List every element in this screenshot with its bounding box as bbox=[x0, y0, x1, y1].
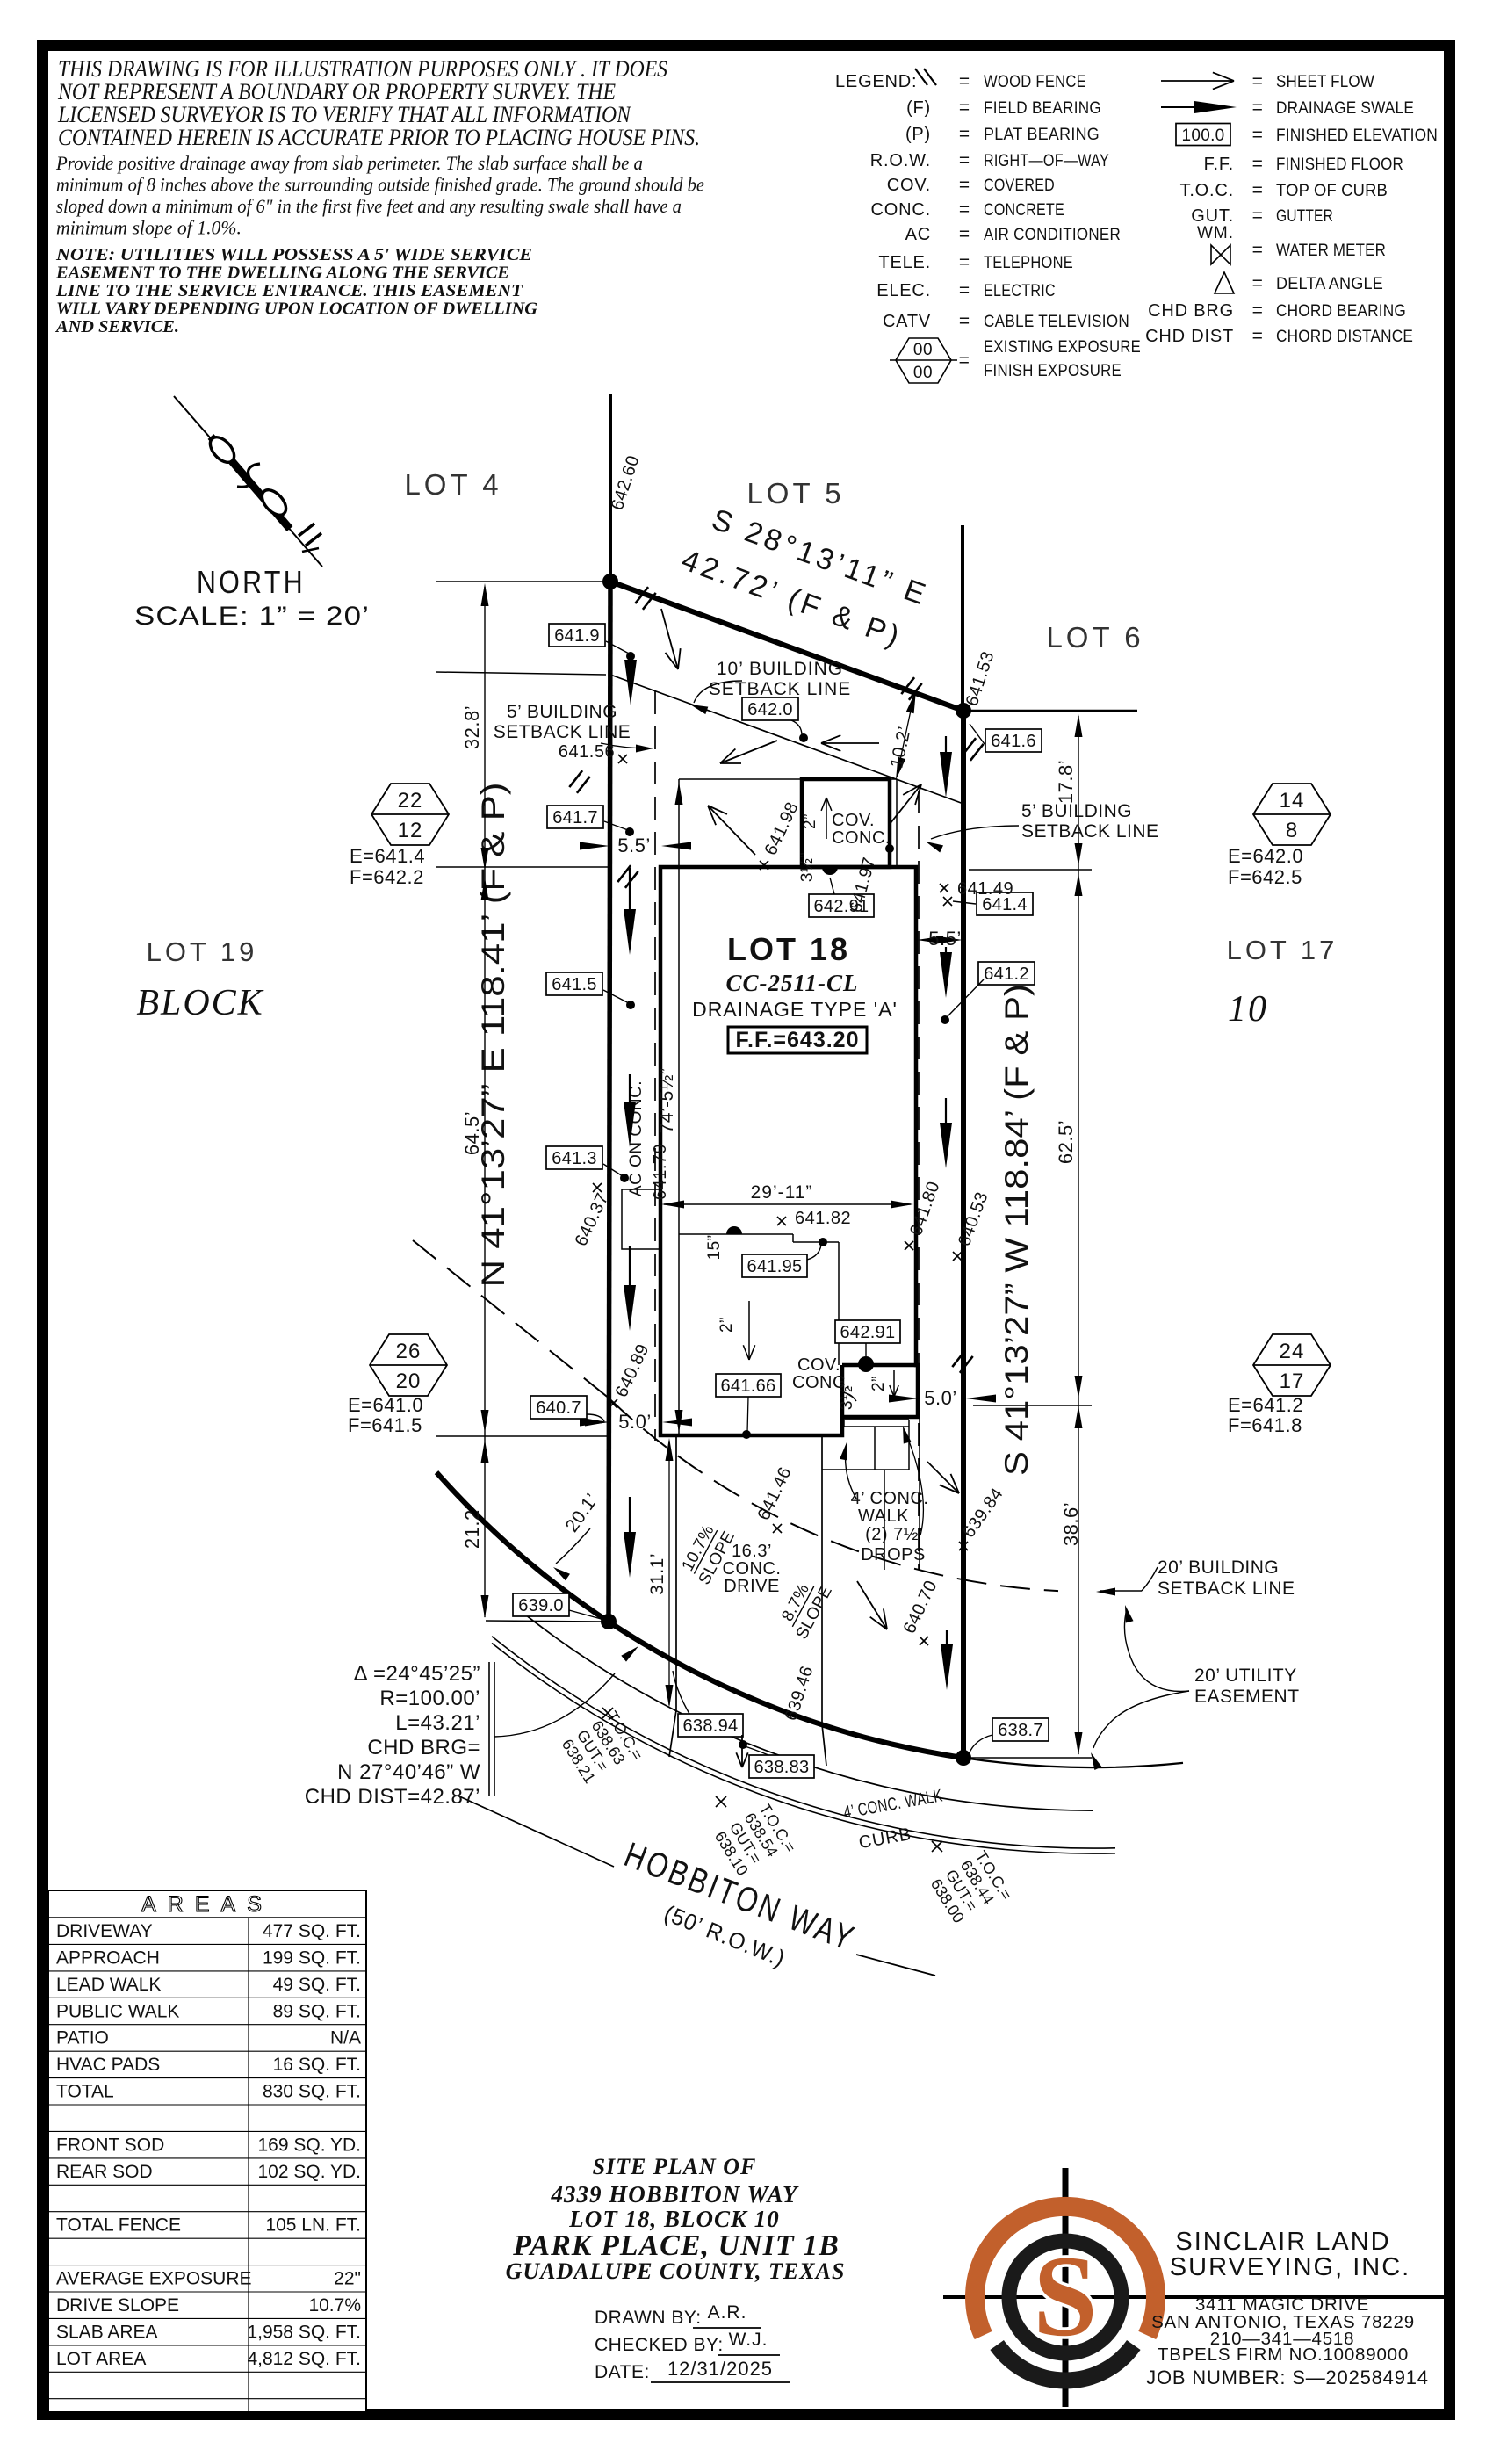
svg-text:CONC.: CONC. bbox=[871, 200, 931, 220]
svg-text:LOT 6: LOT 6 bbox=[1046, 621, 1143, 654]
svg-text:4339 HOBBITON WAY: 4339 HOBBITON WAY bbox=[550, 2181, 799, 2207]
svg-text:641.66: 641.66 bbox=[721, 1377, 776, 1396]
svg-text:COV.: COV. bbox=[832, 811, 875, 830]
svg-text:74’-5½”: 74’-5½” bbox=[657, 1068, 677, 1134]
svg-text:641.3: 641.3 bbox=[552, 1149, 597, 1168]
svg-text:E=641.4: E=641.4 bbox=[350, 845, 425, 867]
svg-text:TELE.: TELE. bbox=[878, 253, 931, 272]
svg-text:CATV: CATV bbox=[883, 312, 931, 331]
svg-text:E=641.0: E=641.0 bbox=[348, 1394, 423, 1416]
svg-text:24: 24 bbox=[1280, 1340, 1305, 1363]
svg-text:5’ BUILDING: 5’ BUILDING bbox=[1021, 801, 1132, 821]
svg-text:minimum of 8 inches above the: minimum of 8 inches above the surroundin… bbox=[56, 174, 704, 196]
svg-text:=: = bbox=[959, 199, 970, 220]
svg-text:REAR SOD: REAR SOD bbox=[56, 2162, 153, 2182]
svg-text:102 SQ. YD.: 102 SQ. YD. bbox=[257, 2162, 361, 2182]
svg-text:(F): (F) bbox=[906, 98, 931, 118]
svg-text:LOT 5: LOT 5 bbox=[746, 477, 844, 509]
svg-text:WATER METER: WATER METER bbox=[1276, 242, 1386, 260]
svg-text:4,812 SQ. FT.: 4,812 SQ. FT. bbox=[247, 2349, 361, 2369]
svg-text:38.6’: 38.6’ bbox=[1060, 1502, 1082, 1546]
svg-text:GUADALUPE COUNTY, TEXAS: GUADALUPE COUNTY, TEXAS bbox=[506, 2258, 846, 2284]
svg-text:169 SQ. YD.: 169 SQ. YD. bbox=[257, 2135, 361, 2155]
svg-text:=: = bbox=[959, 311, 970, 331]
svg-text:=: = bbox=[959, 150, 970, 170]
svg-text:14: 14 bbox=[1280, 789, 1305, 813]
svg-text:CHECKED BY:: CHECKED BY: bbox=[595, 2335, 724, 2355]
svg-text:CONCRETE: CONCRETE bbox=[984, 201, 1064, 220]
svg-text:5.5’: 5.5’ bbox=[617, 835, 650, 856]
svg-text:ELEC.: ELEC. bbox=[876, 281, 931, 300]
svg-text:CHD DIST: CHD DIST bbox=[1145, 327, 1234, 346]
svg-text:WILL VARY DEPENDING UPON L: WILL VARY DEPENDING UPON LOCATION OF DWE… bbox=[56, 300, 537, 319]
svg-text:DROPS: DROPS bbox=[861, 1545, 926, 1564]
svg-text:TBPELS FIRM NO.10089000: TBPELS FIRM NO.10089000 bbox=[1158, 2345, 1409, 2365]
svg-text:AND SERVICE.: AND SERVICE. bbox=[54, 318, 179, 336]
svg-text:1,958 SQ. FT.: 1,958 SQ. FT. bbox=[247, 2322, 361, 2342]
svg-text:CONC.: CONC. bbox=[832, 828, 891, 848]
svg-text:20: 20 bbox=[396, 1369, 422, 1393]
svg-text:LOT 17: LOT 17 bbox=[1227, 935, 1338, 965]
svg-text:E=641.2: E=641.2 bbox=[1228, 1394, 1303, 1416]
svg-text:SLAB AREA: SLAB AREA bbox=[56, 2322, 158, 2342]
svg-text:AC: AC bbox=[905, 225, 931, 244]
svg-text:5.5’: 5.5’ bbox=[928, 928, 961, 950]
svg-text:SETBACK LINE: SETBACK LINE bbox=[1158, 1579, 1295, 1599]
svg-text:F.F.: F.F. bbox=[1204, 155, 1234, 174]
svg-text:CONC.: CONC. bbox=[723, 1559, 782, 1579]
svg-text:17.8’: 17.8’ bbox=[1055, 760, 1077, 804]
svg-text:EASEMENT TO THE DWELLING A: EASEMENT TO THE DWELLING ALONG THE SERVI… bbox=[55, 264, 509, 283]
svg-text:=: = bbox=[959, 175, 970, 195]
svg-text:PUBLIC WALK: PUBLIC WALK bbox=[56, 2001, 179, 2021]
svg-text:3½”: 3½” bbox=[798, 852, 817, 882]
svg-text:17: 17 bbox=[1280, 1369, 1305, 1393]
svg-text:PLAT BEARING: PLAT BEARING bbox=[984, 126, 1100, 144]
svg-text:=: = bbox=[1252, 98, 1264, 118]
svg-text:641.6: 641.6 bbox=[991, 732, 1036, 751]
svg-text:SETBACK LINE: SETBACK LINE bbox=[709, 679, 852, 699]
svg-text:=: = bbox=[1252, 71, 1264, 91]
svg-text:GUT.: GUT. bbox=[1191, 206, 1234, 226]
svg-text:638.83: 638.83 bbox=[754, 1758, 810, 1777]
svg-text:8: 8 bbox=[1286, 819, 1298, 842]
svg-text:641.82: 641.82 bbox=[795, 1209, 851, 1228]
svg-text:COV.: COV. bbox=[797, 1355, 840, 1375]
svg-text:830 SQ. FT.: 830 SQ. FT. bbox=[263, 2082, 361, 2102]
svg-text:2”: 2” bbox=[801, 813, 819, 829]
svg-text:=: = bbox=[959, 98, 970, 118]
svg-text:THIS DRAWING IS FOR ILLUSTRATI: THIS DRAWING IS FOR ILLUSTRATION PURPOSE… bbox=[58, 56, 667, 82]
svg-text:W.J.: W.J. bbox=[729, 2330, 768, 2350]
svg-text:WM.: WM. bbox=[1197, 224, 1234, 242]
svg-text:SURVEYING, INC.: SURVEYING, INC. bbox=[1170, 2253, 1410, 2281]
svg-text:R.O.W.: R.O.W. bbox=[870, 151, 931, 170]
svg-text:LOT 4: LOT 4 bbox=[404, 468, 501, 501]
svg-text:DRAINAGE TYPE 'A': DRAINAGE TYPE 'A' bbox=[692, 998, 898, 1021]
svg-text:CC-2511-CL: CC-2511-CL bbox=[725, 970, 858, 996]
svg-text:DRAWN BY:: DRAWN BY: bbox=[595, 2308, 702, 2328]
svg-text:=: = bbox=[1252, 125, 1264, 145]
svg-text:16.3’: 16.3’ bbox=[732, 1542, 772, 1561]
svg-text:SETBACK LINE: SETBACK LINE bbox=[494, 722, 631, 742]
svg-text:=: = bbox=[959, 224, 970, 244]
svg-text:=: = bbox=[1252, 180, 1264, 200]
svg-text:LINE TO THE SERVICE ENTRAN: LINE TO THE SERVICE ENTRANCE. THIS EASEM… bbox=[55, 282, 523, 300]
svg-text:62.5’: 62.5’ bbox=[1055, 1120, 1077, 1164]
svg-text:26: 26 bbox=[396, 1340, 422, 1363]
svg-text:641.5: 641.5 bbox=[552, 975, 597, 994]
svg-text:DRIVE SLOPE: DRIVE SLOPE bbox=[56, 2295, 179, 2316]
svg-text:PARK PLACE, UNIT 1B: PARK PLACE, UNIT 1B bbox=[512, 2229, 840, 2262]
svg-text:=: = bbox=[1252, 273, 1264, 293]
svg-text:GUTTER: GUTTER bbox=[1276, 207, 1333, 226]
svg-text:F=642.5: F=642.5 bbox=[1228, 866, 1302, 888]
svg-text:641.49: 641.49 bbox=[957, 879, 1013, 899]
svg-text:N 41°13’27” E 118.41’ (F & P): N 41°13’27” E 118.41’ (F & P) bbox=[475, 783, 511, 1288]
svg-text:FRONT SOD: FRONT SOD bbox=[56, 2135, 164, 2155]
svg-text:10: 10 bbox=[1228, 989, 1268, 1030]
svg-text:(2) 7½’: (2) 7½’ bbox=[865, 1525, 923, 1544]
svg-text:=: = bbox=[959, 252, 970, 272]
svg-text:64.5’: 64.5’ bbox=[461, 1111, 483, 1155]
svg-text:CABLE TELEVISION: CABLE TELEVISION bbox=[984, 313, 1129, 331]
svg-text:640.7: 640.7 bbox=[536, 1398, 581, 1418]
svg-text:Δ =24°45’25”: Δ =24°45’25” bbox=[354, 1662, 480, 1686]
svg-text:S: S bbox=[1033, 2231, 1097, 2360]
svg-text:12/31/2025: 12/31/2025 bbox=[667, 2358, 773, 2380]
svg-text:TOTAL: TOTAL bbox=[56, 2082, 114, 2102]
svg-text:00: 00 bbox=[913, 364, 933, 382]
svg-text:TOTAL FENCE: TOTAL FENCE bbox=[56, 2215, 181, 2236]
svg-text:638.94: 638.94 bbox=[683, 1716, 739, 1736]
svg-text:=: = bbox=[1252, 326, 1264, 346]
svg-text:641.2: 641.2 bbox=[984, 965, 1029, 984]
svg-text:639.0: 639.0 bbox=[518, 1596, 564, 1615]
svg-text:=: = bbox=[1252, 300, 1264, 321]
svg-text:=: = bbox=[1252, 240, 1264, 260]
svg-text:CHD BRG=: CHD BRG= bbox=[367, 1736, 480, 1759]
svg-text:CHD DIST=42.87’: CHD DIST=42.87’ bbox=[305, 1785, 480, 1809]
svg-text:2”: 2” bbox=[869, 1376, 888, 1391]
svg-text:TELEPHONE: TELEPHONE bbox=[984, 254, 1073, 272]
svg-text:31.1’: 31.1’ bbox=[647, 1553, 667, 1595]
svg-text:CHORD DISTANCE: CHORD DISTANCE bbox=[1276, 328, 1413, 346]
svg-text:89 SQ. FT.: 89 SQ. FT. bbox=[273, 2001, 361, 2021]
svg-text:2”: 2” bbox=[718, 1317, 736, 1333]
svg-text:29’-11”: 29’-11” bbox=[751, 1182, 813, 1203]
svg-text:FINISHED ELEVATION: FINISHED ELEVATION bbox=[1276, 126, 1438, 145]
svg-text:LEGEND:: LEGEND: bbox=[835, 72, 917, 91]
svg-text:DRAINAGE SWALE: DRAINAGE SWALE bbox=[1276, 99, 1414, 118]
svg-text:SINCLAIR LAND: SINCLAIR LAND bbox=[1175, 2228, 1390, 2256]
svg-text:COVERED: COVERED bbox=[984, 177, 1055, 195]
svg-text:T.O.C.: T.O.C. bbox=[1180, 181, 1234, 200]
svg-text:SITE PLAN OF: SITE PLAN OF bbox=[593, 2154, 757, 2179]
svg-text:F.F.=643.20: F.F.=643.20 bbox=[736, 1028, 860, 1052]
svg-text:EASEMENT: EASEMENT bbox=[1194, 1687, 1300, 1707]
svg-text:DRIVEWAY: DRIVEWAY bbox=[56, 1921, 153, 1941]
svg-text:LOT 18, BLOCK 10: LOT 18, BLOCK 10 bbox=[568, 2206, 780, 2232]
svg-text:5.0’: 5.0’ bbox=[618, 1411, 651, 1433]
svg-text:R=100.00’: R=100.00’ bbox=[379, 1687, 480, 1710]
svg-text:5’ BUILDING: 5’ BUILDING bbox=[507, 702, 617, 722]
svg-text:JOB NUMBER: S—202584914: JOB NUMBER: S—202584914 bbox=[1146, 2366, 1429, 2388]
svg-text:AVERAGE EXPOSURE: AVERAGE EXPOSURE bbox=[56, 2269, 252, 2289]
svg-text:3½”: 3½” bbox=[838, 1380, 856, 1410]
svg-text:199 SQ. FT.: 199 SQ. FT. bbox=[263, 1947, 361, 1968]
svg-text:SCALE: 1” = 20’: SCALE: 1” = 20’ bbox=[134, 602, 370, 631]
svg-text:641.95: 641.95 bbox=[747, 1257, 803, 1276]
svg-text:105 LN. FT.: 105 LN. FT. bbox=[265, 2215, 361, 2236]
svg-text:642.0: 642.0 bbox=[747, 700, 793, 719]
svg-text:WOOD FENCE: WOOD FENCE bbox=[984, 73, 1086, 91]
svg-text:22: 22 bbox=[398, 789, 423, 813]
svg-text:16 SQ. FT.: 16 SQ. FT. bbox=[273, 2055, 361, 2075]
svg-text:DELTA ANGLE: DELTA ANGLE bbox=[1276, 275, 1383, 293]
svg-text:ELECTRIC: ELECTRIC bbox=[984, 282, 1056, 300]
svg-text:F=641.8: F=641.8 bbox=[1228, 1414, 1302, 1436]
svg-text:AREAS: AREAS bbox=[141, 1892, 273, 1917]
svg-text:F=642.2: F=642.2 bbox=[350, 866, 424, 888]
svg-text:DATE:: DATE: bbox=[595, 2362, 650, 2382]
svg-text:10’ BUILDING: 10’ BUILDING bbox=[717, 659, 843, 679]
svg-text:COV.: COV. bbox=[887, 176, 931, 195]
svg-text:=: = bbox=[1252, 206, 1264, 226]
svg-text:CONTAINED HEREIN IS ACCURATE P: CONTAINED HEREIN IS ACCURATE PRIOR TO PL… bbox=[58, 125, 700, 150]
svg-text:21.2’: 21.2’ bbox=[461, 1505, 483, 1549]
svg-text:WALK: WALK bbox=[858, 1507, 909, 1526]
svg-text:F=641.5: F=641.5 bbox=[348, 1414, 422, 1436]
svg-text:=: = bbox=[959, 124, 970, 144]
svg-text:LEAD WALK: LEAD WALK bbox=[56, 1975, 161, 1995]
svg-text:LOT 19: LOT 19 bbox=[147, 936, 258, 967]
svg-text:22": 22" bbox=[334, 2269, 361, 2289]
svg-text:20’ UTILITY: 20’ UTILITY bbox=[1194, 1666, 1297, 1686]
svg-text:5.0’: 5.0’ bbox=[924, 1387, 956, 1409]
svg-text:NOTE: UTILITIES WILL POSSES: NOTE: UTILITIES WILL POSSESS A 5' WIDE S… bbox=[55, 246, 532, 264]
svg-text:FINISH EXPOSURE: FINISH EXPOSURE bbox=[984, 362, 1122, 380]
svg-text:20’ BUILDING: 20’ BUILDING bbox=[1158, 1557, 1279, 1578]
svg-text:642.91: 642.91 bbox=[840, 1323, 896, 1342]
svg-text:638.7: 638.7 bbox=[998, 1721, 1043, 1740]
svg-text:S 41°13’27” W 118.84’ (F & P): S 41°13’27” W 118.84’ (F & P) bbox=[999, 984, 1035, 1476]
svg-text:LOT 18: LOT 18 bbox=[727, 931, 850, 967]
svg-text:AIR CONDITIONER: AIR CONDITIONER bbox=[984, 226, 1121, 244]
svg-text:=: = bbox=[1252, 154, 1264, 174]
svg-text:477 SQ. FT.: 477 SQ. FT. bbox=[263, 1921, 361, 1941]
svg-text:BLOCK: BLOCK bbox=[136, 983, 263, 1023]
svg-text:RIGHT—OF—WAY: RIGHT—OF—WAY bbox=[984, 152, 1109, 170]
svg-text:641.9: 641.9 bbox=[554, 626, 600, 646]
svg-text:A.R.: A.R. bbox=[708, 2302, 747, 2323]
svg-text:641.56: 641.56 bbox=[559, 742, 615, 762]
svg-text:641.7: 641.7 bbox=[552, 808, 598, 827]
svg-text:15”: 15” bbox=[705, 1235, 724, 1261]
svg-text:NOT REPRESENT A BOUNDARY OR PR: NOT REPRESENT A BOUNDARY OR PROPERTY SUR… bbox=[57, 79, 616, 105]
svg-text:FIELD BEARING: FIELD BEARING bbox=[984, 99, 1101, 118]
svg-text:Provide positive drainage away: Provide positive drainage away from slab… bbox=[55, 152, 643, 174]
svg-text:E=642.0: E=642.0 bbox=[1228, 845, 1303, 867]
svg-text:sloped down a minimum of 6" in: sloped down a minimum of 6" in the first… bbox=[56, 195, 682, 217]
svg-text:=: = bbox=[959, 71, 970, 91]
svg-text:10.7%: 10.7% bbox=[308, 2295, 361, 2316]
svg-text:SETBACK LINE: SETBACK LINE bbox=[1021, 821, 1159, 842]
svg-text:PATIO: PATIO bbox=[56, 2028, 109, 2049]
svg-text:APPROACH: APPROACH bbox=[56, 1947, 160, 1968]
svg-text:NORTH: NORTH bbox=[197, 564, 306, 600]
svg-text:49 SQ. FT.: 49 SQ. FT. bbox=[273, 1975, 361, 1995]
svg-text:SHEET FLOW: SHEET FLOW bbox=[1276, 73, 1374, 91]
svg-text:N 27°40’46” W: N 27°40’46” W bbox=[337, 1760, 480, 1784]
svg-text:100.0: 100.0 bbox=[1181, 126, 1224, 145]
svg-text:CHD BRG: CHD BRG bbox=[1148, 301, 1234, 321]
svg-text:DRIVE: DRIVE bbox=[724, 1577, 780, 1596]
svg-text:=: = bbox=[959, 280, 970, 300]
svg-text:12: 12 bbox=[398, 819, 423, 842]
svg-text:minimum slope of 1.0%.: minimum slope of 1.0%. bbox=[56, 217, 242, 239]
svg-text:=: = bbox=[959, 350, 970, 371]
svg-text:FINISHED FLOOR: FINISHED FLOOR bbox=[1276, 155, 1403, 174]
svg-text:TOP OF CURB: TOP OF CURB bbox=[1276, 182, 1388, 200]
svg-text:641.79: 641.79 bbox=[651, 1144, 670, 1200]
svg-text:4’ CONC.: 4’ CONC. bbox=[851, 1489, 929, 1508]
svg-text:CHORD BEARING: CHORD BEARING bbox=[1276, 302, 1406, 321]
svg-text:LOT AREA: LOT AREA bbox=[56, 2349, 146, 2369]
svg-text:EXISTING EXPOSURE: EXISTING EXPOSURE bbox=[984, 338, 1141, 357]
svg-text:N/A: N/A bbox=[330, 2028, 361, 2049]
svg-text:32.8’: 32.8’ bbox=[461, 705, 483, 749]
svg-text:(P): (P) bbox=[905, 125, 931, 144]
svg-text:HVAC PADS: HVAC PADS bbox=[56, 2055, 160, 2075]
svg-text:LICENSED SURVEYOR IS TO VERIFY: LICENSED SURVEYOR IS TO VERIFY THAT ALL … bbox=[57, 102, 631, 127]
svg-text:00: 00 bbox=[913, 341, 933, 359]
svg-text:L=43.21’: L=43.21’ bbox=[395, 1711, 480, 1735]
